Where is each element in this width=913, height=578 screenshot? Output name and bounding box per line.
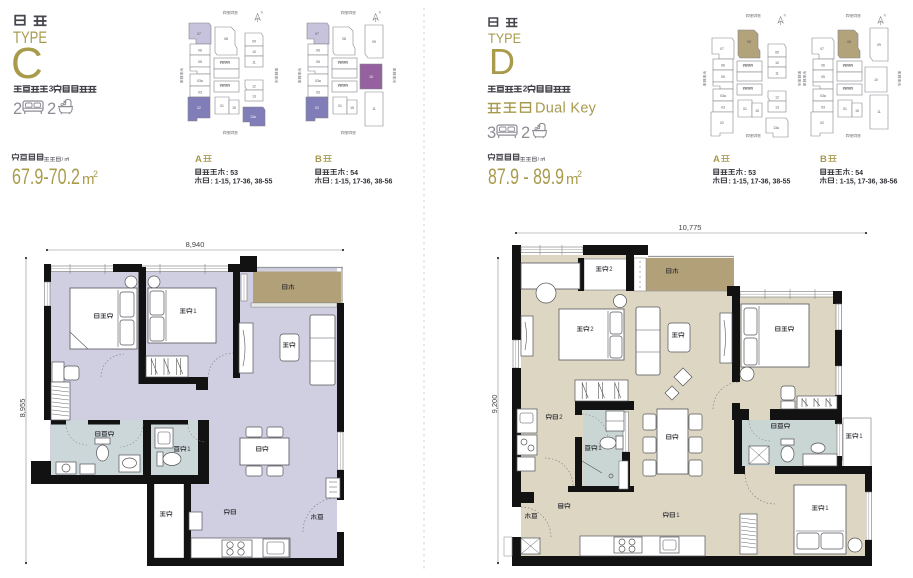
svg-text:05: 05 <box>821 75 825 79</box>
svg-text:10: 10 <box>874 78 878 82</box>
svg-text:13a: 13a <box>773 126 779 130</box>
svg-text:09: 09 <box>877 43 881 47</box>
svg-text:05: 05 <box>721 75 725 79</box>
svg-text:10: 10 <box>775 61 779 65</box>
svg-text:A: A <box>713 154 720 165</box>
svg-text:01: 01 <box>743 107 747 111</box>
svg-text:11: 11 <box>877 110 881 114</box>
svg-text:07: 07 <box>720 47 724 51</box>
svg-text:11: 11 <box>372 107 376 111</box>
svg-text:Dual Key: Dual Key <box>535 101 597 117</box>
svg-text:05: 05 <box>316 60 320 64</box>
svg-text:08: 08 <box>342 37 346 41</box>
svg-text:: 1-15, 17-36, 38-56: : 1-15, 17-36, 38-56 <box>836 179 898 186</box>
svg-text:08: 08 <box>847 40 851 44</box>
svg-text:10: 10 <box>252 50 256 54</box>
svg-text:03a: 03a <box>820 94 826 98</box>
svg-text:A: A <box>195 154 202 165</box>
svg-text:06: 06 <box>721 64 725 68</box>
svg-text:03: 03 <box>198 91 202 95</box>
svg-text:02: 02 <box>820 121 824 125</box>
svg-text:: 1-15, 17-36, 38-55: : 1-15, 17-36, 38-55 <box>729 179 791 186</box>
svg-text:09: 09 <box>372 40 376 44</box>
svg-text:15: 15 <box>855 109 859 113</box>
svg-text:01: 01 <box>220 104 224 108</box>
svg-text:02: 02 <box>315 106 319 110</box>
svg-text:05: 05 <box>198 60 202 64</box>
svg-text:D: D <box>489 41 515 82</box>
svg-text:2: 2 <box>523 85 528 94</box>
svg-text:11: 11 <box>252 61 256 65</box>
svg-text:2: 2 <box>577 169 582 179</box>
svg-text:: 1-15, 17-36, 38-56: : 1-15, 17-36, 38-56 <box>331 179 393 186</box>
svg-text:03a: 03a <box>720 94 726 98</box>
svg-text:03: 03 <box>316 91 320 95</box>
svg-text:8,940: 8,940 <box>186 240 205 249</box>
svg-text:67.9-70.2: 67.9-70.2 <box>12 164 80 189</box>
svg-text:2: 2 <box>13 100 22 118</box>
svg-text:B: B <box>315 154 322 165</box>
svg-text:B: B <box>820 154 827 165</box>
svg-text:02: 02 <box>197 106 201 110</box>
svg-text:06: 06 <box>821 64 825 68</box>
svg-text:02: 02 <box>720 121 724 125</box>
svg-text:06: 06 <box>316 49 320 53</box>
svg-text:C: C <box>11 39 43 88</box>
svg-text:3: 3 <box>49 85 54 94</box>
svg-text:: 54: : 54 <box>346 170 358 177</box>
svg-text:²: ² <box>67 157 69 163</box>
svg-text:11: 11 <box>775 72 779 76</box>
svg-text:9,200: 9,200 <box>490 395 499 414</box>
svg-text:: 53: : 53 <box>226 170 238 177</box>
svg-text:10: 10 <box>369 75 373 79</box>
svg-text:13: 13 <box>775 106 779 110</box>
svg-text:08: 08 <box>747 40 751 44</box>
svg-text:3: 3 <box>487 124 496 142</box>
svg-text:10,775: 10,775 <box>679 223 702 232</box>
svg-text:01: 01 <box>338 104 342 108</box>
svg-text:2: 2 <box>93 169 98 179</box>
svg-text:: 1-15, 17-36, 38-55: : 1-15, 17-36, 38-55 <box>211 179 273 186</box>
svg-text:12: 12 <box>252 85 256 89</box>
svg-text:: 54: : 54 <box>851 170 863 177</box>
svg-text:08: 08 <box>224 37 228 41</box>
svg-text:15: 15 <box>755 109 759 113</box>
svg-text:09: 09 <box>252 40 256 44</box>
svg-text:: 53: : 53 <box>744 170 756 177</box>
svg-text:15: 15 <box>232 106 236 110</box>
svg-text:07: 07 <box>820 47 824 51</box>
svg-text:12: 12 <box>775 96 779 100</box>
svg-text:07: 07 <box>315 32 319 36</box>
svg-text:03: 03 <box>721 106 725 110</box>
svg-text:06: 06 <box>198 49 202 53</box>
svg-text:07: 07 <box>197 32 201 36</box>
svg-text:8,955: 8,955 <box>18 399 27 418</box>
svg-text:13a: 13a <box>250 115 256 119</box>
svg-text:03a: 03a <box>197 79 203 83</box>
svg-text:15: 15 <box>350 106 354 110</box>
svg-text:01: 01 <box>843 107 847 111</box>
svg-text:2: 2 <box>521 124 530 142</box>
svg-text:87.9 - 89.9: 87.9 - 89.9 <box>488 164 564 189</box>
svg-text:2: 2 <box>47 100 56 118</box>
svg-text:09: 09 <box>775 51 779 55</box>
svg-text:03: 03 <box>821 106 825 110</box>
svg-text:13: 13 <box>252 95 256 99</box>
svg-text:²: ² <box>543 157 545 163</box>
svg-text:03a: 03a <box>315 79 321 83</box>
